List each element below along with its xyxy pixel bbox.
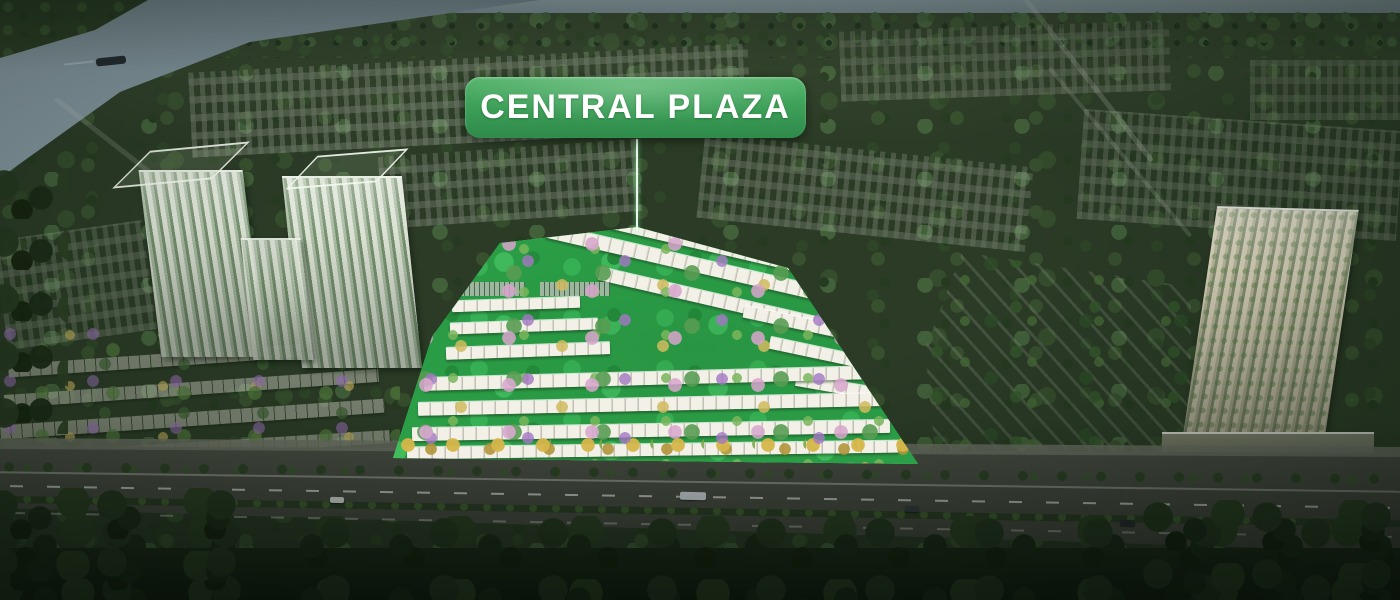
car xyxy=(905,506,919,512)
tower-left-wing xyxy=(241,238,314,360)
plaza-palm-trees xyxy=(925,252,1191,472)
bg-neighborhood-b xyxy=(839,20,1171,101)
car xyxy=(330,497,344,503)
scene-image: CENTRAL PLAZA xyxy=(0,0,1400,600)
left-bank-trees xyxy=(0,168,68,434)
callout-label: CENTRAL PLAZA xyxy=(480,88,791,127)
foreground-grove-right xyxy=(1140,500,1400,600)
callout-leader-line xyxy=(636,139,638,231)
bus xyxy=(680,492,706,500)
bg-neighborhood-f xyxy=(1250,60,1400,120)
foreground-grove-left xyxy=(0,488,285,600)
central-plaza-callout[interactable]: CENTRAL PLAZA xyxy=(465,77,806,138)
